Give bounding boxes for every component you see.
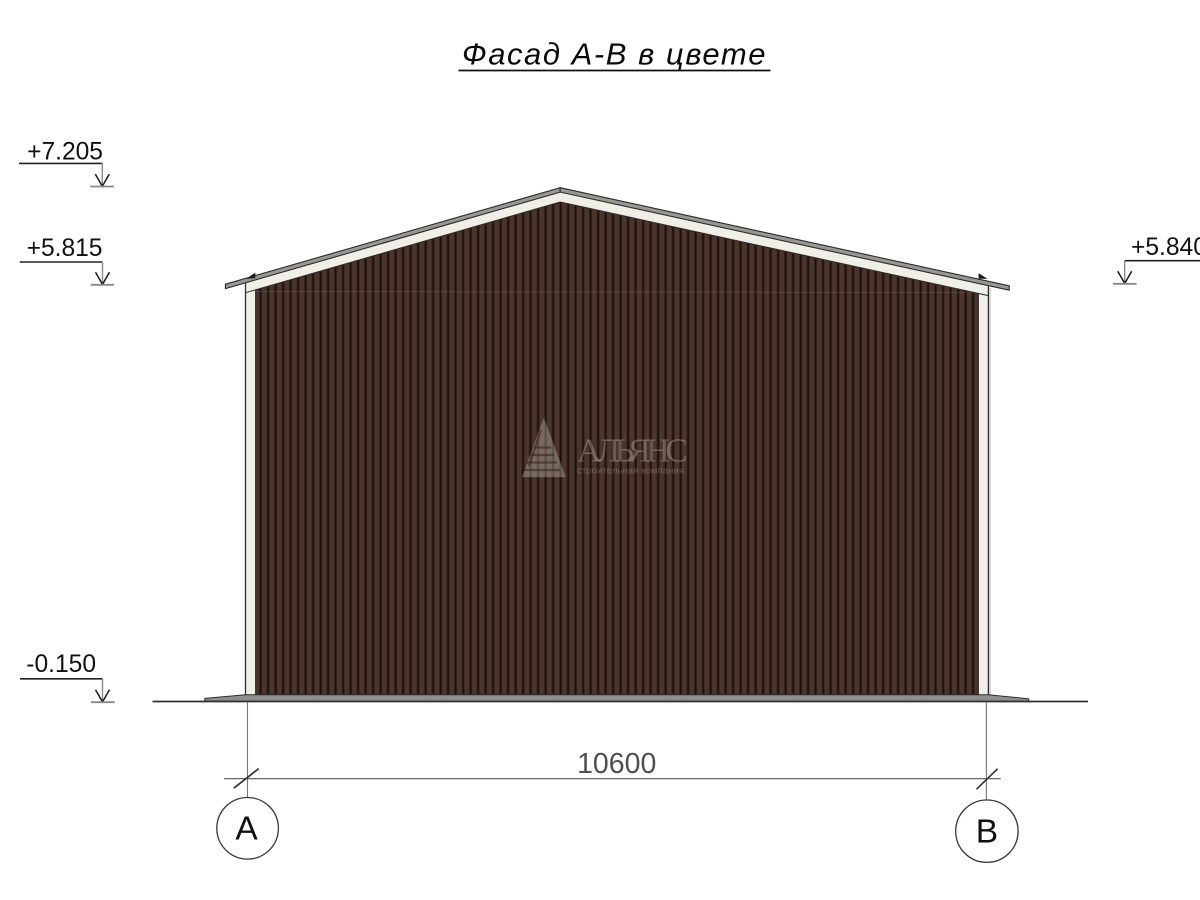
svg-text:+7.205: +7.205 xyxy=(27,139,103,166)
svg-text:В: В xyxy=(976,814,998,851)
svg-text:+5.815: +5.815 xyxy=(27,235,103,262)
svg-text:-0.150: -0.150 xyxy=(26,651,96,678)
svg-text:Фасад А-В в цвете: Фасад А-В в цвете xyxy=(462,37,767,72)
svg-text:А: А xyxy=(235,811,258,848)
svg-text:+5.840: +5.840 xyxy=(1131,234,1200,261)
svg-text:строительная компания: строительная компания xyxy=(577,466,684,477)
svg-text:АЛЬЯНС: АЛЬЯНС xyxy=(577,432,686,469)
svg-text:10600: 10600 xyxy=(577,748,656,780)
